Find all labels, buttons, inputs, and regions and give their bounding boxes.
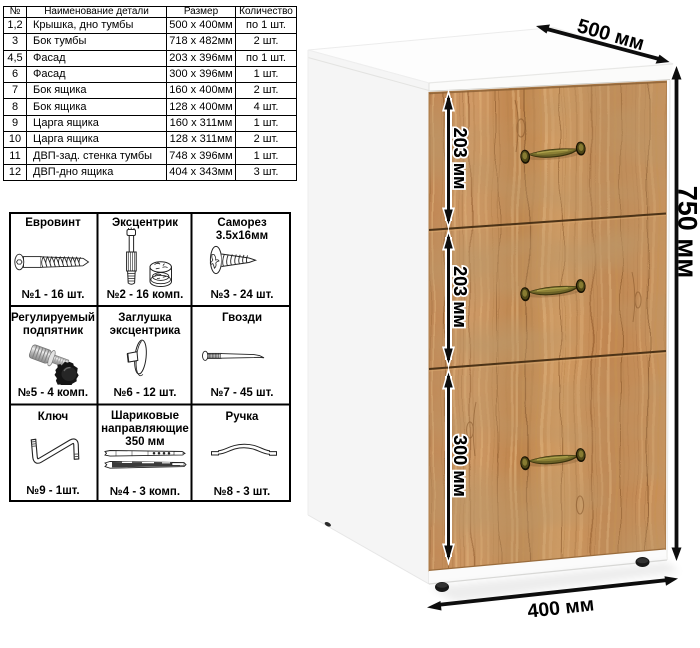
svg-text:203 мм: 203 мм — [450, 266, 470, 328]
svg-text:750 мм: 750 мм — [673, 186, 700, 279]
svg-text:400 мм: 400 мм — [526, 593, 595, 622]
svg-text:203 мм: 203 мм — [450, 128, 470, 190]
svg-text:300 мм: 300 мм — [450, 435, 470, 497]
